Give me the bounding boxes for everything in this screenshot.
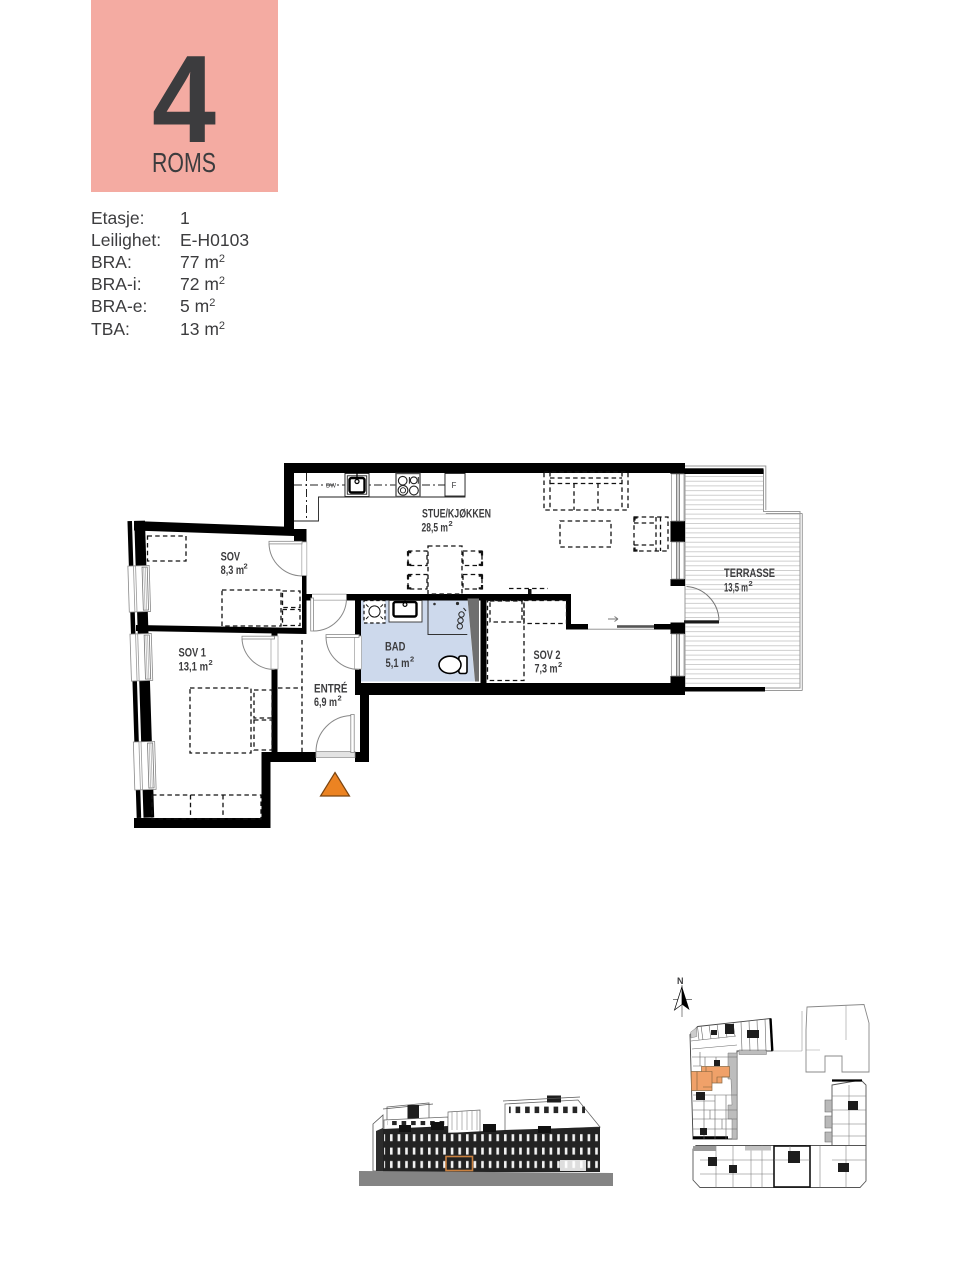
svg-text:SOV: SOV bbox=[221, 550, 241, 564]
svg-text:77 m2: 77 m2 bbox=[180, 252, 225, 272]
svg-text:72 m2: 72 m2 bbox=[180, 274, 225, 294]
svg-text:DW: DW bbox=[326, 484, 336, 490]
svg-text:2: 2 bbox=[338, 694, 342, 703]
svg-text:13,1 m: 13,1 m bbox=[179, 660, 209, 674]
svg-text:Leilighet:: Leilighet: bbox=[91, 230, 161, 250]
svg-text:13 m2: 13 m2 bbox=[180, 319, 225, 339]
svg-text:13,5 m: 13,5 m bbox=[724, 581, 748, 595]
svg-text:2: 2 bbox=[209, 658, 213, 667]
svg-text:TERRASSE: TERRASSE bbox=[724, 566, 775, 580]
svg-text:SOV 2: SOV 2 bbox=[534, 648, 561, 662]
svg-text:2: 2 bbox=[449, 519, 453, 528]
svg-text:STUE/KJØKKEN: STUE/KJØKKEN bbox=[422, 507, 491, 521]
svg-text:ROMS: ROMS bbox=[152, 147, 216, 178]
svg-text:BRA-e:: BRA-e: bbox=[91, 296, 147, 316]
svg-text:1: 1 bbox=[180, 208, 190, 228]
svg-text:F: F bbox=[452, 481, 457, 490]
svg-text:BAD: BAD bbox=[385, 640, 406, 654]
svg-text:2: 2 bbox=[558, 660, 562, 669]
svg-text:28,5 m: 28,5 m bbox=[422, 521, 449, 535]
svg-text:TBA:: TBA: bbox=[91, 319, 130, 339]
svg-text:8,3 m: 8,3 m bbox=[221, 563, 245, 577]
svg-text:ENTRÉ: ENTRÉ bbox=[314, 681, 348, 696]
svg-text:N: N bbox=[677, 976, 684, 986]
svg-text:SOV 1: SOV 1 bbox=[179, 646, 207, 660]
svg-text:Etasje:: Etasje: bbox=[91, 208, 145, 228]
svg-text:BRA-i:: BRA-i: bbox=[91, 274, 142, 294]
svg-text:6,9 m: 6,9 m bbox=[314, 695, 337, 709]
svg-text:2: 2 bbox=[749, 579, 753, 588]
svg-text:2: 2 bbox=[244, 562, 248, 571]
svg-text:BRA:: BRA: bbox=[91, 252, 132, 272]
svg-text:2: 2 bbox=[410, 655, 414, 664]
svg-text:5,1 m: 5,1 m bbox=[386, 656, 410, 670]
svg-text:7,3 m: 7,3 m bbox=[535, 662, 558, 676]
svg-text:E-H0103: E-H0103 bbox=[180, 230, 249, 250]
